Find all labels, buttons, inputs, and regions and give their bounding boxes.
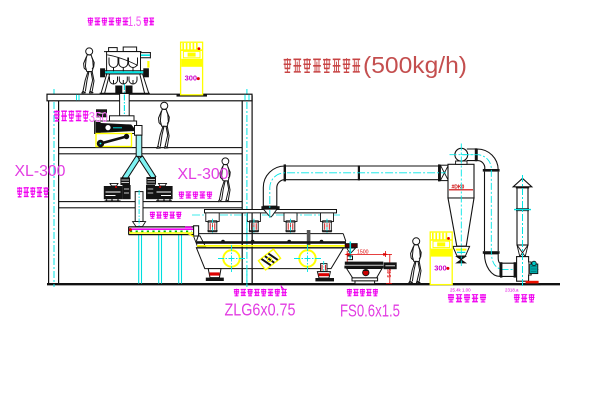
svg-text:(500kg/h): (500kg/h)	[363, 52, 467, 78]
svg-text:#DK0: #DK0	[452, 185, 465, 191]
svg-text:XL-300: XL-300	[178, 166, 229, 183]
svg-text:2318.a: 2318.a	[505, 288, 519, 293]
svg-text:350: 350	[89, 110, 108, 126]
svg-text:545: 545	[387, 269, 393, 278]
svg-text:ZLG6x0.75: ZLG6x0.75	[225, 300, 296, 320]
svg-text:1.5: 1.5	[128, 14, 142, 29]
svg-text:1500: 1500	[357, 250, 369, 256]
svg-text:FS0.6x1.5: FS0.6x1.5	[340, 301, 400, 321]
svg-text:25.4k 1.00: 25.4k 1.00	[450, 288, 471, 293]
svg-text:XL-300: XL-300	[15, 163, 66, 180]
